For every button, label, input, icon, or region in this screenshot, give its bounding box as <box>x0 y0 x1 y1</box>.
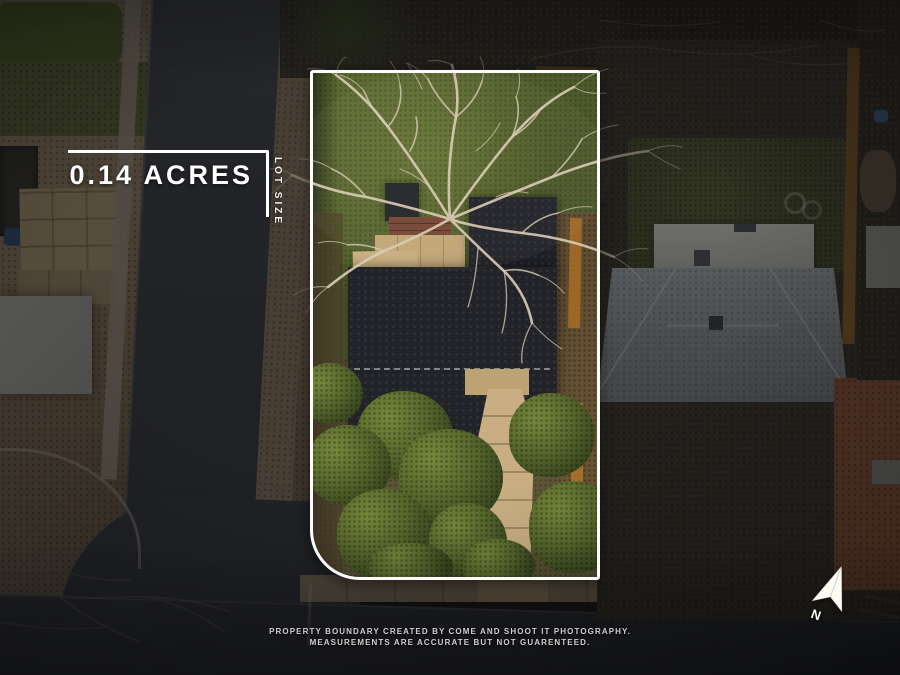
debris-pile <box>860 150 896 212</box>
concrete-patch <box>872 460 900 484</box>
blue-object <box>874 110 888 122</box>
left-house-roof <box>0 296 92 394</box>
disclaimer-line-2: MEASUREMENTS ARE ACCURATE BUT NOT GUAREN… <box>235 637 665 648</box>
roof-notch <box>734 224 756 232</box>
acreage-callout: 0.14 ACRES <box>68 150 269 217</box>
aerial-photo: 0.14 ACRES LOT SIZE N PROPERTY BOUNDARY … <box>0 0 900 675</box>
patio-furniture-ring <box>802 200 822 220</box>
hedge <box>0 2 122 66</box>
road-branches <box>0 552 330 675</box>
property-boundary <box>310 70 600 580</box>
roof-vent <box>709 316 723 330</box>
roof-vent <box>694 250 710 266</box>
north-label: N <box>809 606 823 623</box>
shed-roof <box>866 226 900 288</box>
disclaimer-line-1: PROPERTY BOUNDARY CREATED BY COME AND SH… <box>235 626 665 637</box>
acreage-value: 0.14 ACRES <box>68 153 266 191</box>
disclaimer-text: PROPERTY BOUNDARY CREATED BY COME AND SH… <box>235 626 665 648</box>
lot-size-label: LOT SIZE <box>272 157 283 226</box>
